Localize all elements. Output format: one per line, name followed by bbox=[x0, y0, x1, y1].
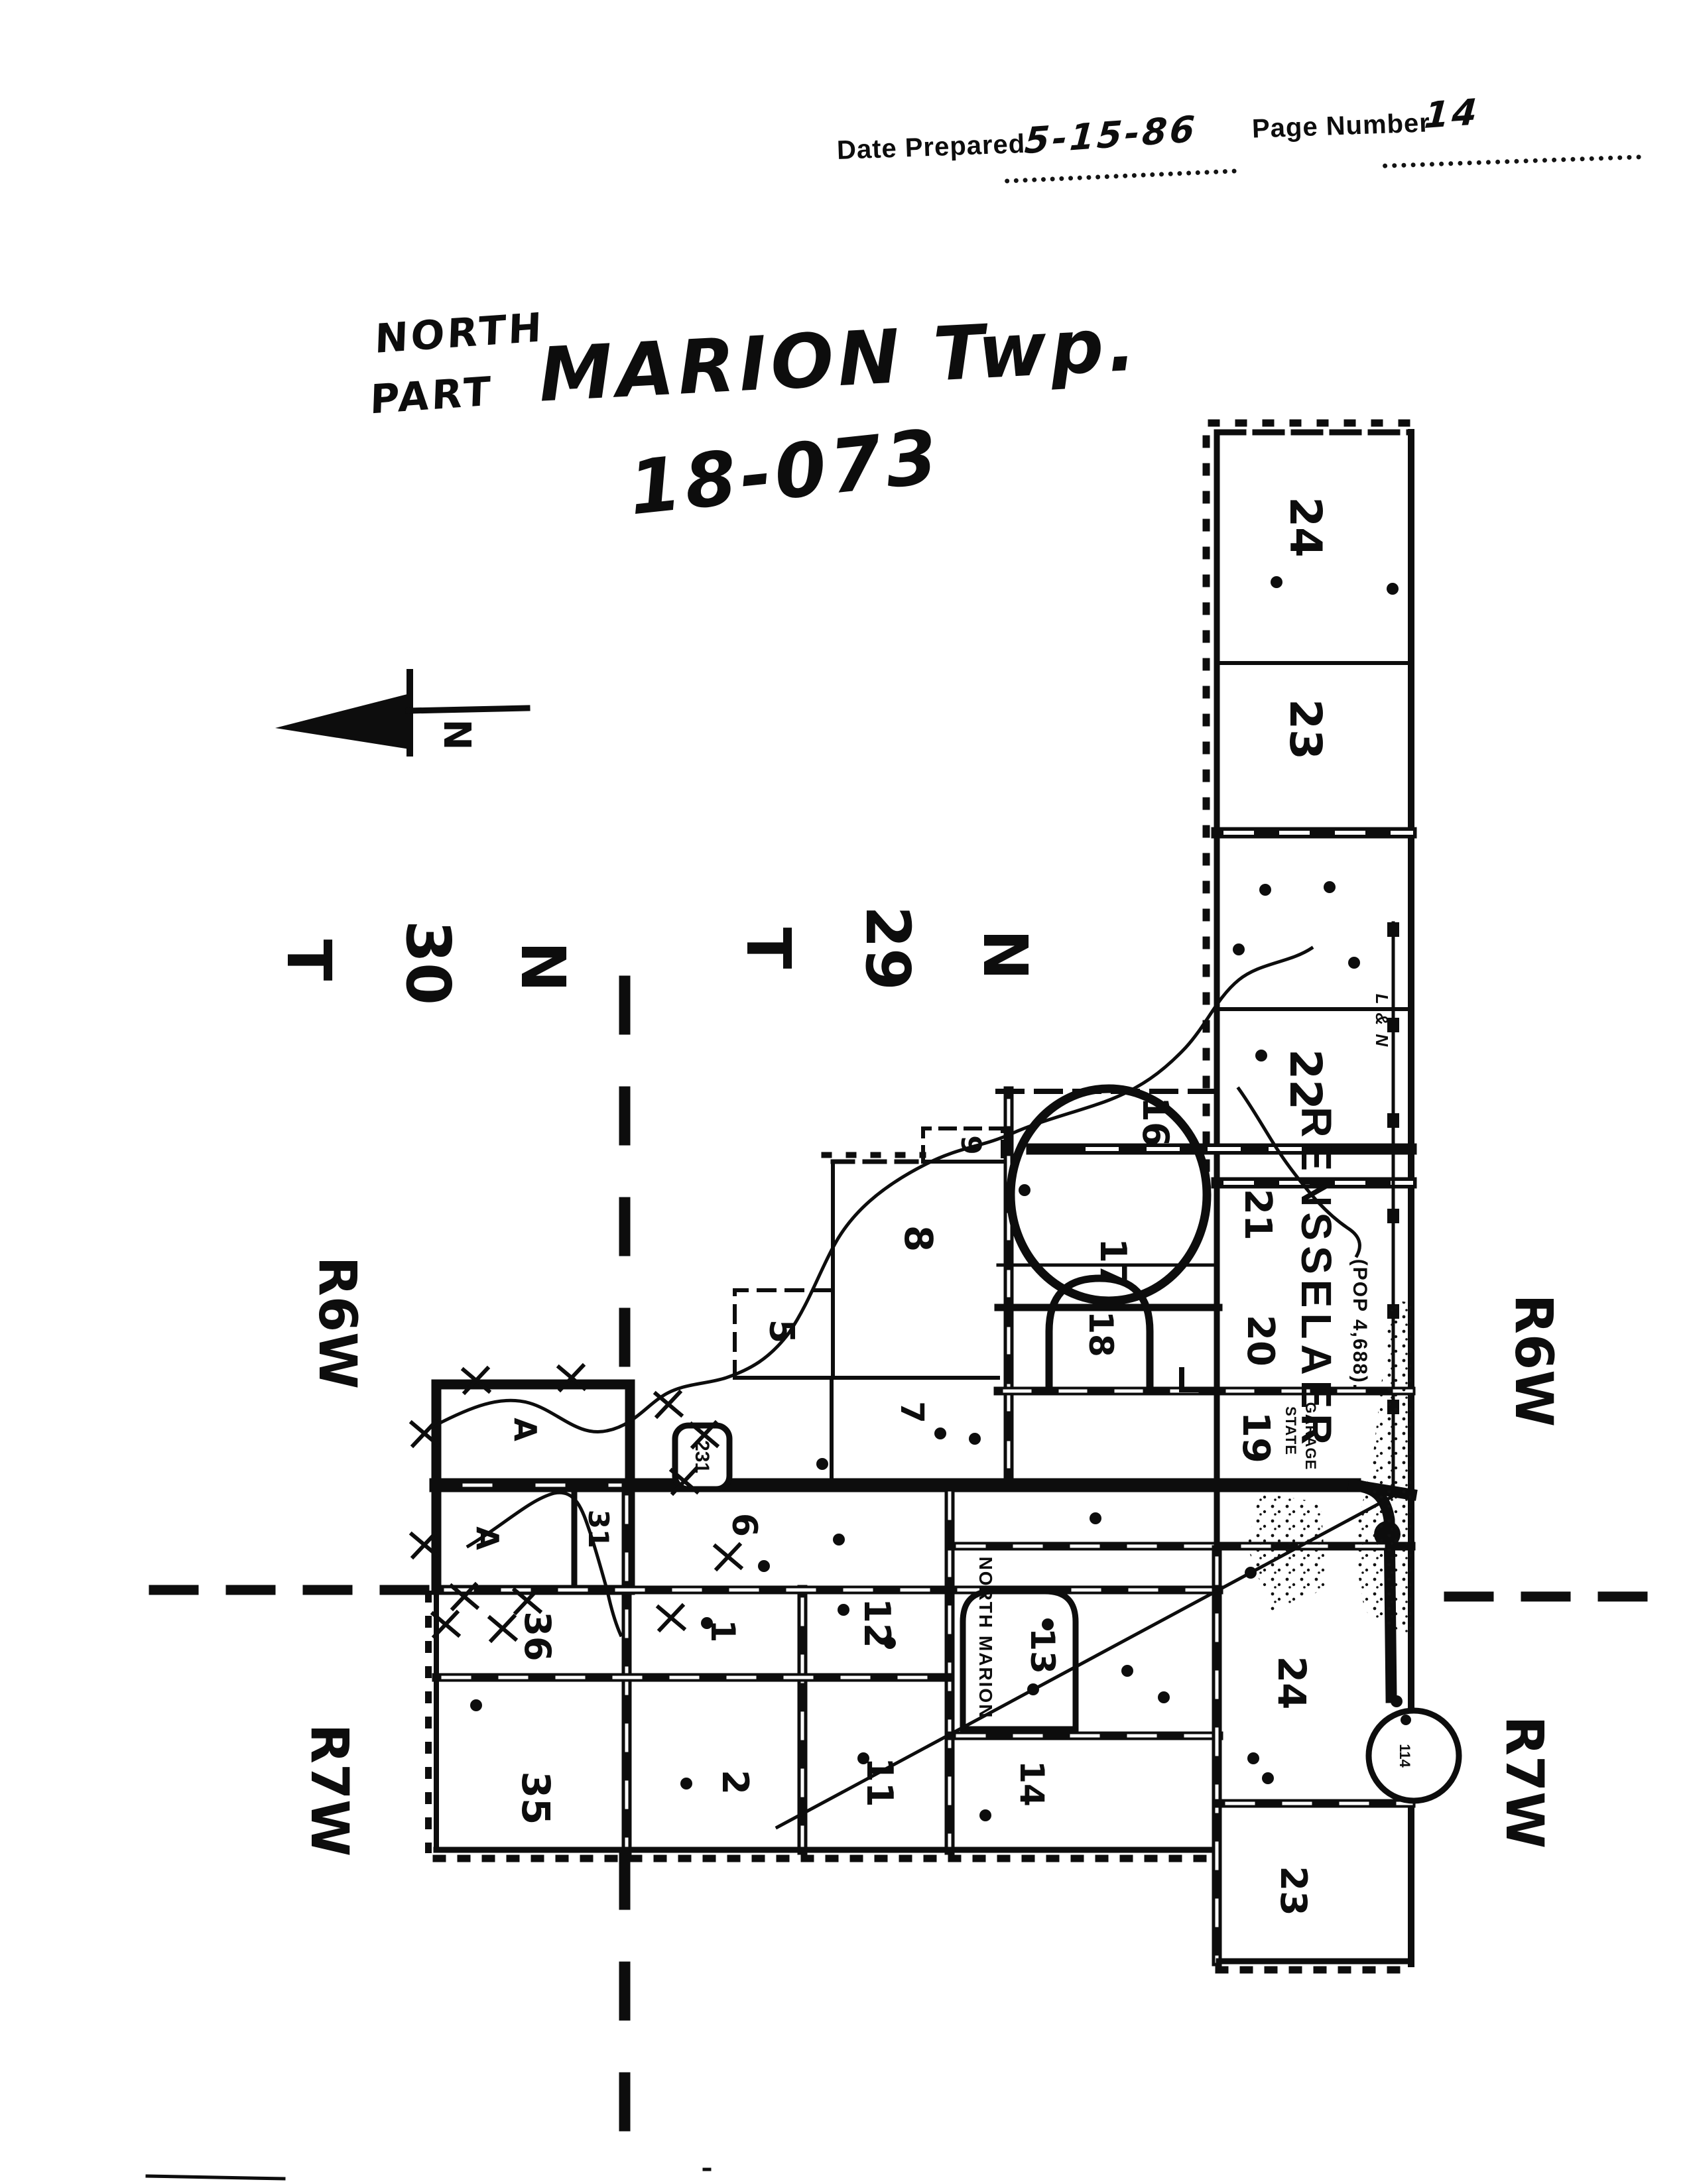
range-r6w-left: R6W bbox=[311, 1256, 363, 1389]
city-name-label: RENSSELAER bbox=[1295, 1107, 1338, 1449]
section-23-label: 23 bbox=[1283, 699, 1327, 760]
section-20-label: 20 bbox=[1241, 1315, 1279, 1366]
section-6-label: 6 bbox=[727, 1513, 761, 1537]
section-12-label: 12 bbox=[859, 1598, 895, 1648]
urban-stipple-area bbox=[1247, 1493, 1326, 1611]
page-number-label: Page Number bbox=[1251, 108, 1430, 144]
range-r7w-left: R7W bbox=[303, 1724, 355, 1856]
north-arrow-icon bbox=[275, 672, 527, 753]
section-21-label: 21 bbox=[1239, 1189, 1276, 1241]
sr-114-circle-icon bbox=[1369, 1711, 1459, 1801]
section-31-label: 31 bbox=[584, 1510, 612, 1548]
section-35-label: 35 bbox=[517, 1772, 555, 1825]
title-region-line2: PART bbox=[369, 368, 493, 423]
parcel-a-upper-label: A bbox=[510, 1418, 540, 1441]
township-t30n-n: N bbox=[512, 941, 573, 993]
section-5-label: 5 bbox=[764, 1319, 798, 1343]
section-13-label: 13 bbox=[1026, 1628, 1059, 1674]
section-9-label: 9 bbox=[957, 1135, 985, 1154]
section-22-label: 22 bbox=[1283, 1049, 1327, 1110]
compass-north-letter: N bbox=[438, 719, 475, 751]
township-t29n-t: T bbox=[737, 928, 798, 969]
section-8-label: 8 bbox=[899, 1225, 938, 1252]
state-garage-label-line2: GARAGE bbox=[1303, 1402, 1318, 1471]
section-19-label: 19 bbox=[1237, 1412, 1274, 1463]
section-1-label: 1 bbox=[706, 1620, 739, 1643]
section-2-label: 2 bbox=[717, 1770, 753, 1795]
city-population-label: (POP 4,688). bbox=[1349, 1259, 1369, 1391]
section-17-label: 17 bbox=[1095, 1238, 1131, 1288]
sr-114-circle-label: 114 bbox=[1397, 1744, 1412, 1768]
railroad-ln-label: L & N bbox=[1373, 994, 1391, 1048]
township-t29n-number: 29 bbox=[857, 906, 918, 991]
section-14-label: 14 bbox=[1015, 1760, 1048, 1807]
section-16-label: 16 bbox=[1137, 1097, 1173, 1146]
north-marion-label: NORTH MARION bbox=[976, 1557, 995, 1719]
section-7-label: 7 bbox=[896, 1401, 928, 1423]
parcel-a-lower-label: A bbox=[472, 1526, 503, 1550]
section-11-label: 11 bbox=[861, 1757, 897, 1807]
section-18-label: 18 bbox=[1084, 1311, 1117, 1357]
range-r7w-right: R7W bbox=[1498, 1716, 1550, 1849]
township-t29n-n: N bbox=[974, 930, 1035, 981]
section-24-label: 24 bbox=[1283, 497, 1327, 558]
us-231-shield-label: 231 bbox=[692, 1440, 712, 1473]
plat-map-page: Date Prepared 5-15-86 Page Number 14 NOR… bbox=[0, 0, 1687, 2184]
township-t30n-number: 30 bbox=[397, 920, 458, 1005]
township-t30n-t: T bbox=[278, 940, 339, 981]
section-36-label: 36 bbox=[519, 1611, 555, 1661]
state-garage-label-line1: STATE bbox=[1283, 1406, 1298, 1455]
range-r6w-right: R6W bbox=[1507, 1294, 1559, 1427]
section-24-south-label: 24 bbox=[1273, 1656, 1311, 1710]
section-23-south-label: 23 bbox=[1275, 1866, 1311, 1915]
page-number-value: 14 bbox=[1423, 91, 1481, 137]
